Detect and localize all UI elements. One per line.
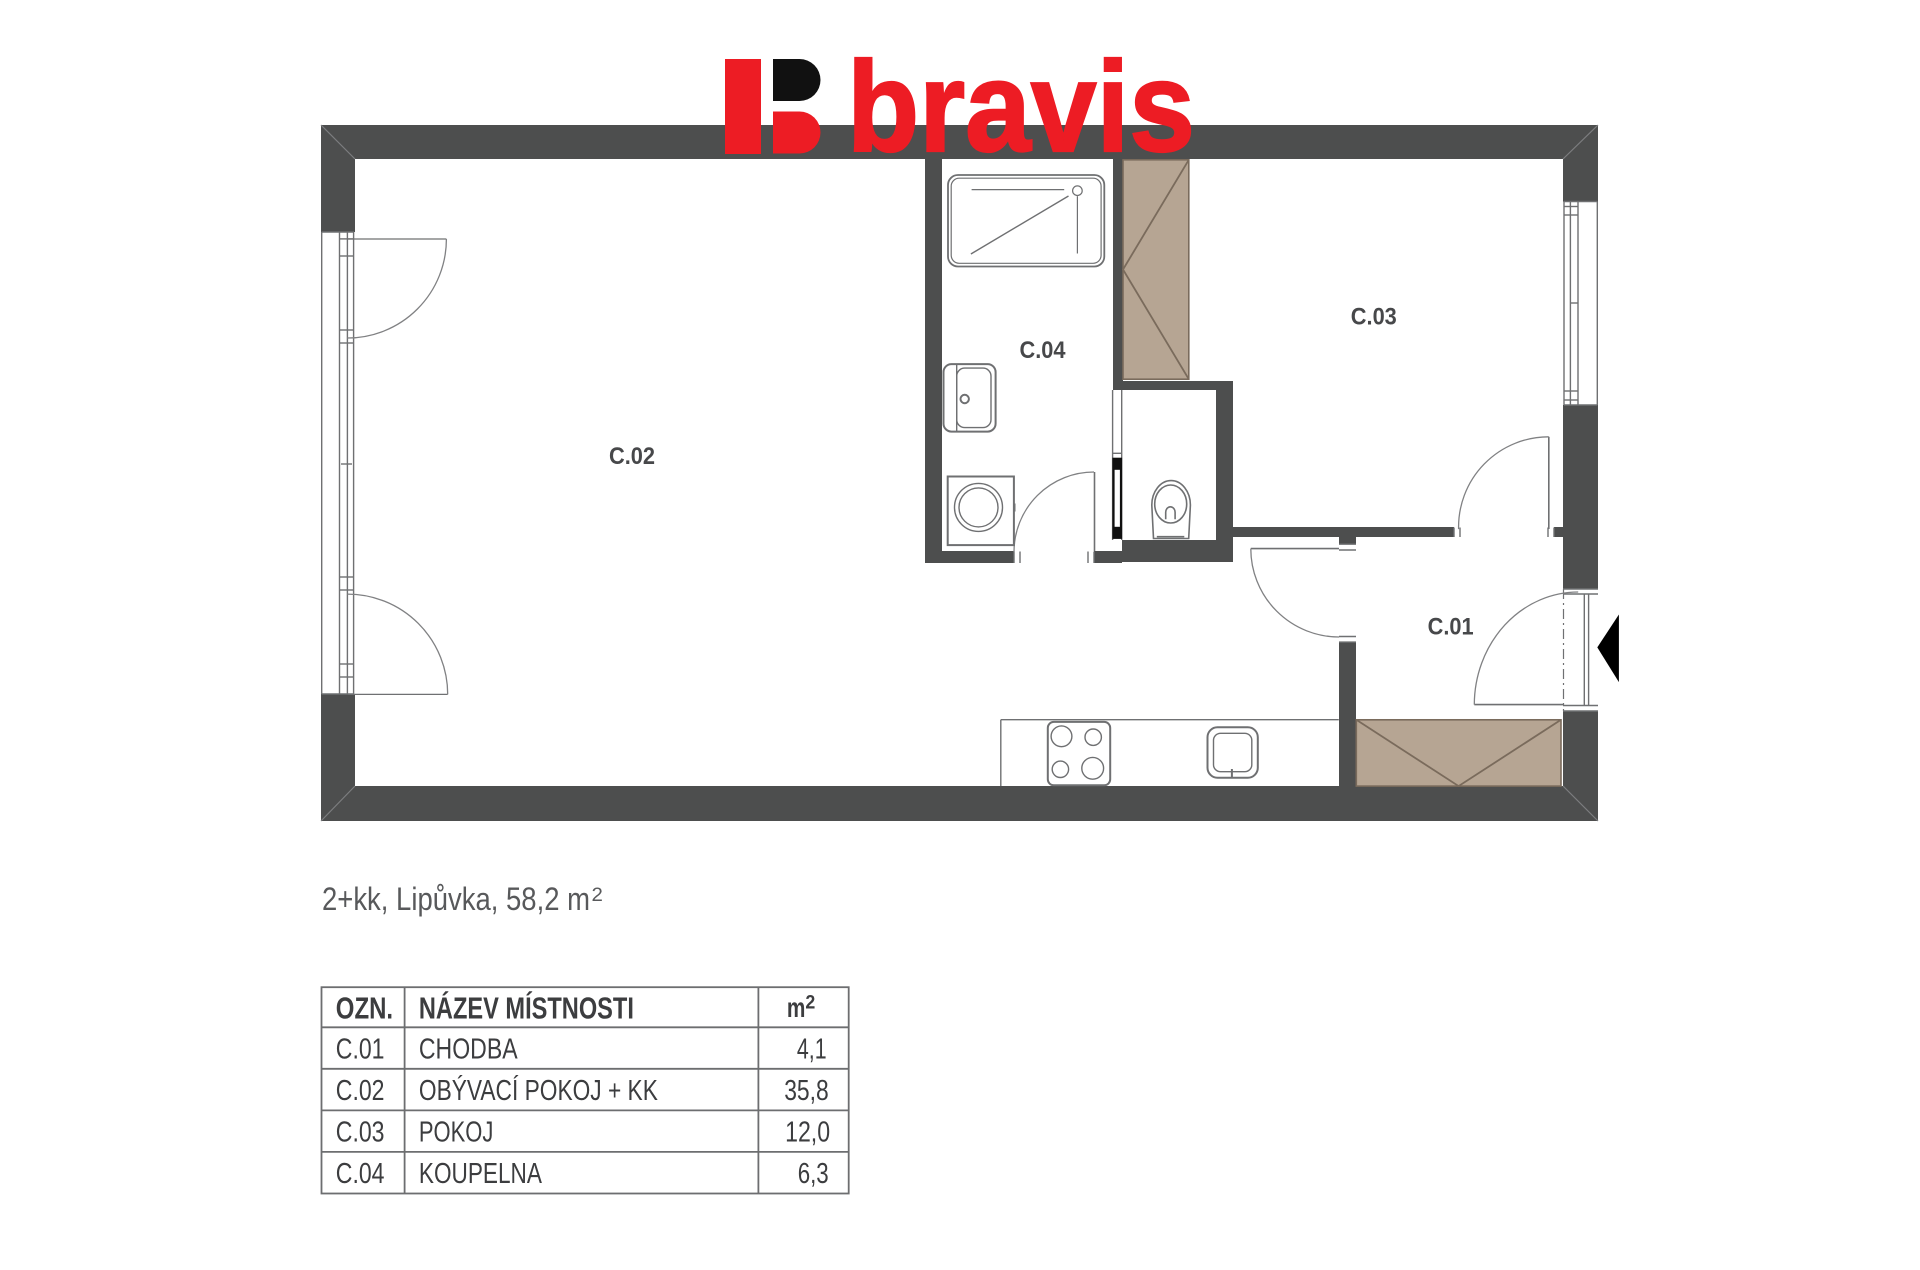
svg-text:CHODBA: CHODBA bbox=[419, 1034, 518, 1066]
svg-text:OZN.: OZN. bbox=[336, 991, 393, 1026]
svg-text:m: m bbox=[787, 992, 806, 1023]
svg-text:6,3: 6,3 bbox=[798, 1158, 829, 1190]
svg-text:2: 2 bbox=[805, 992, 815, 1013]
svg-text:4,1: 4,1 bbox=[797, 1034, 827, 1066]
svg-text:C.02: C.02 bbox=[336, 1075, 385, 1107]
svg-text:KOUPELNA: KOUPELNA bbox=[419, 1158, 543, 1190]
svg-text:C.03: C.03 bbox=[1351, 304, 1397, 331]
svg-text:C.04: C.04 bbox=[336, 1158, 385, 1190]
svg-text:12,0: 12,0 bbox=[785, 1117, 830, 1149]
svg-text:POKOJ: POKOJ bbox=[419, 1117, 494, 1149]
svg-text:OBÝVACÍ POKOJ + KK: OBÝVACÍ POKOJ + KK bbox=[419, 1074, 659, 1107]
svg-text:C.03: C.03 bbox=[336, 1117, 385, 1149]
svg-text:C.04: C.04 bbox=[1020, 337, 1067, 364]
svg-text:C.01: C.01 bbox=[336, 1034, 385, 1066]
svg-text:2: 2 bbox=[592, 885, 603, 906]
svg-text:NÁZEV MÍSTNOSTI: NÁZEV MÍSTNOSTI bbox=[419, 991, 634, 1026]
svg-text:35,8: 35,8 bbox=[784, 1075, 829, 1107]
svg-text:bravis: bravis bbox=[847, 36, 1195, 179]
svg-text:C.01: C.01 bbox=[1428, 613, 1474, 640]
svg-text:C.02: C.02 bbox=[609, 443, 655, 470]
svg-text:2+kk, Lipůvka, 58,2 m: 2+kk, Lipůvka, 58,2 m bbox=[322, 881, 590, 917]
